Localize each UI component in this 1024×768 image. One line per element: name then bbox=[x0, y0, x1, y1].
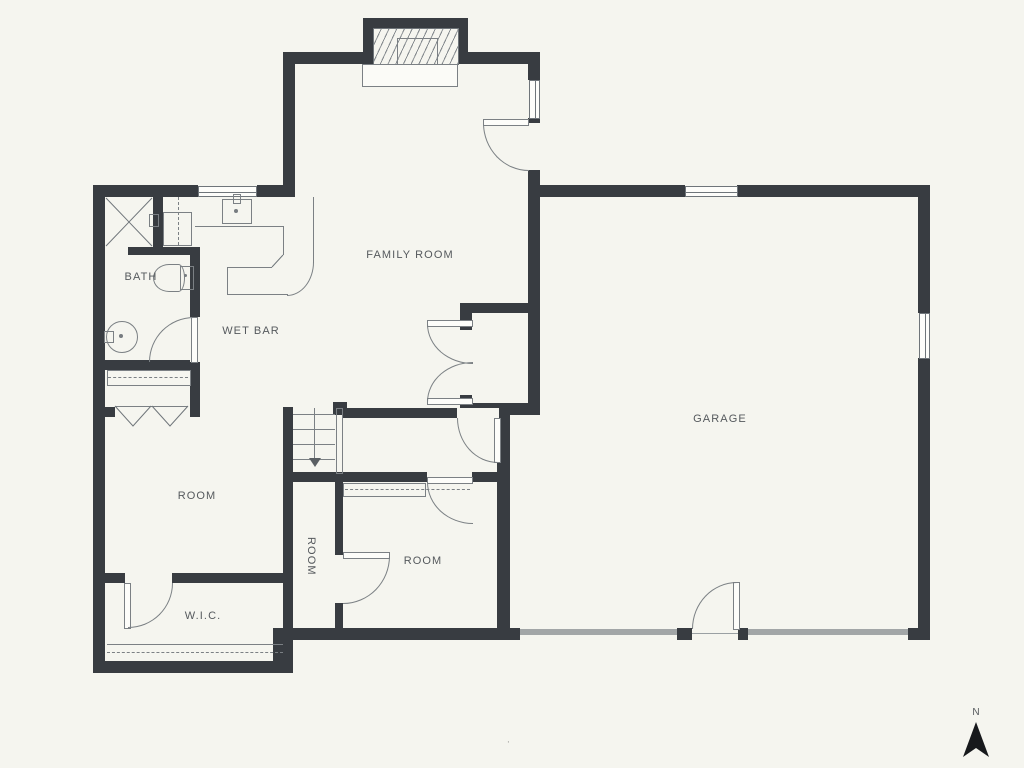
footer-mark: · bbox=[504, 736, 514, 748]
wall-pantry-top bbox=[460, 303, 540, 313]
door-arc-garage-man bbox=[692, 582, 737, 629]
stairs-rail bbox=[336, 408, 343, 474]
wall-rooms-divider bbox=[283, 407, 293, 673]
door-arc-wic bbox=[128, 583, 173, 628]
opening-familyroom-door bbox=[528, 123, 540, 170]
wall-fireplace-right bbox=[458, 18, 468, 64]
north-arrow-icon bbox=[963, 722, 989, 757]
closet-shelf-bottomroom bbox=[343, 483, 426, 497]
closet-shelf-bath bbox=[107, 370, 191, 386]
door-arc-hall bbox=[457, 418, 498, 463]
counter-edge-top bbox=[195, 226, 283, 227]
label-family-room: FAMILY ROOM bbox=[348, 249, 472, 261]
pedestal-sink-faucet bbox=[104, 331, 114, 343]
window-garage-top bbox=[685, 186, 738, 197]
pedestal-sink-drain bbox=[119, 334, 123, 338]
label-wet-bar: WET BAR bbox=[211, 325, 291, 337]
fireplace-insert bbox=[397, 38, 438, 65]
label-wic: W.I.C. bbox=[168, 610, 238, 622]
label-room-bottom: ROOM bbox=[383, 555, 463, 567]
wall-bifold-jamb-left bbox=[102, 407, 115, 417]
window-garage-right bbox=[919, 313, 930, 359]
closet-rod-bottomroom bbox=[345, 489, 470, 490]
window-familyroom bbox=[529, 80, 540, 119]
counter-edge-outer-v bbox=[313, 197, 314, 263]
wall-garage-bottom-a bbox=[677, 628, 692, 640]
floor-plan-canvas: FAMILY ROOM BATH WET BAR GARAGE ROOM ROO… bbox=[0, 0, 1024, 768]
stairs-down-arrowhead bbox=[309, 458, 321, 467]
wall-fireplace-top bbox=[363, 18, 468, 28]
window-glass-line bbox=[199, 192, 256, 193]
shower-head bbox=[149, 214, 159, 227]
wall-stairs-bottom bbox=[283, 472, 510, 482]
wall-left-outer bbox=[93, 185, 105, 673]
wall-familyroom-top-left bbox=[283, 52, 363, 64]
window-glass-line bbox=[686, 192, 737, 193]
wall-familyroom-top-right bbox=[462, 52, 540, 64]
fireplace-hearth bbox=[362, 64, 458, 87]
wetbar-faucet bbox=[233, 194, 241, 204]
window-glass-line bbox=[925, 314, 926, 358]
label-north: N bbox=[965, 707, 987, 718]
stairs-direction-line bbox=[314, 408, 315, 458]
counter-edge-left bbox=[227, 267, 228, 295]
door-arc-familyroom bbox=[483, 123, 529, 171]
wic-rod-line bbox=[107, 652, 283, 653]
door-arc-pantry-top bbox=[427, 324, 473, 364]
window-bath bbox=[198, 186, 257, 197]
counter-corner-curve bbox=[287, 262, 314, 296]
door-arc-bath bbox=[149, 317, 194, 362]
wall-fireplace-left bbox=[363, 18, 373, 64]
opening-hall-door bbox=[457, 408, 499, 418]
opening-smallroom-door bbox=[335, 555, 343, 603]
counter-diagonal bbox=[272, 255, 283, 267]
bifold-header-line bbox=[115, 406, 188, 407]
garage-door-left-panel bbox=[520, 629, 677, 635]
bifold-doors-icon bbox=[115, 406, 188, 426]
closet-rod-bath bbox=[108, 377, 188, 378]
counter-edge-bottom bbox=[227, 294, 288, 295]
mandoor-threshold bbox=[692, 633, 738, 634]
opening-wic-door bbox=[125, 573, 172, 583]
wall-bottom-middle bbox=[283, 628, 520, 640]
label-garage: GARAGE bbox=[670, 413, 770, 425]
wic-shelf-line bbox=[107, 644, 283, 645]
label-room-small: ROOM bbox=[305, 537, 317, 587]
wall-garage-right bbox=[918, 185, 930, 640]
counter-edge-inner-v bbox=[283, 226, 284, 255]
toilet-flush-mark bbox=[184, 274, 187, 277]
wall-bath-top bbox=[93, 185, 295, 197]
shower-x-icon bbox=[106, 198, 152, 246]
label-bath: BATH bbox=[116, 271, 166, 283]
wetbar-drain bbox=[234, 209, 238, 213]
door-arc-pantry-bottom bbox=[427, 362, 473, 402]
wetbar-cabinet-dashed bbox=[178, 197, 179, 245]
label-room-left: ROOM bbox=[157, 490, 237, 502]
wall-wic-bottom bbox=[93, 661, 293, 673]
garage-door-right-panel bbox=[748, 629, 908, 635]
window-glass-line bbox=[535, 81, 536, 118]
wall-familyroom-left bbox=[283, 52, 295, 197]
counter-edge-inner-h bbox=[227, 267, 272, 268]
